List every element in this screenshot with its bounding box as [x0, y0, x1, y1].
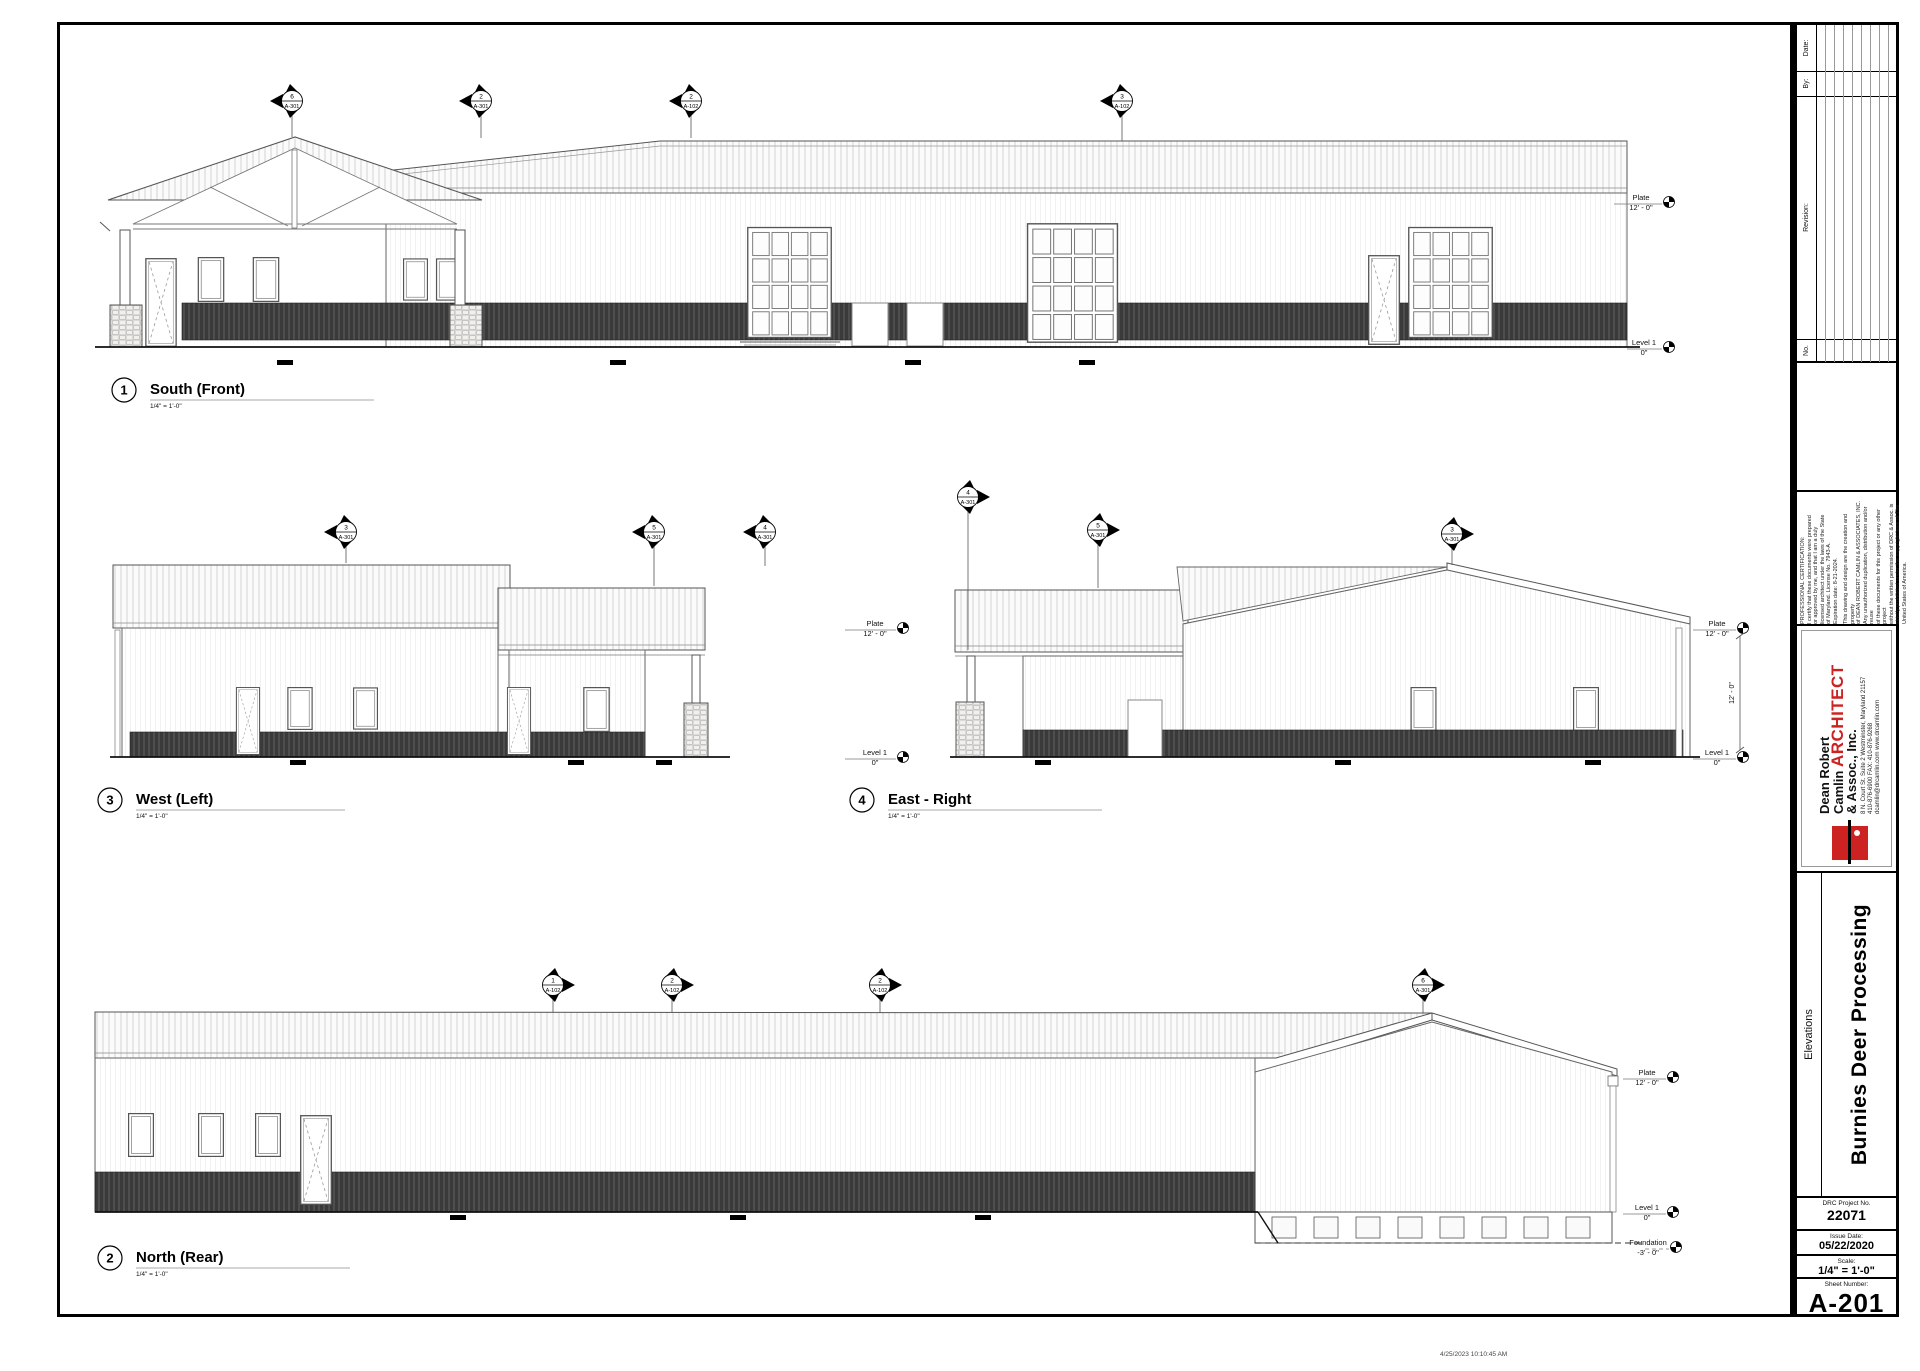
svg-text:4: 4 — [966, 490, 970, 497]
north-view-title: 2 North (Rear) 1/4" = 1'-0" — [98, 1246, 350, 1278]
scale-box: Scale: 1/4" = 1'-0" — [1797, 1254, 1896, 1277]
drawing-sheet: Plate 12' - 0" Level 1 0" 6A-301 2A-301 … — [0, 0, 1920, 1371]
svg-text:6: 6 — [1421, 978, 1425, 985]
scale-label: Scale: — [1797, 1258, 1896, 1265]
svg-text:2: 2 — [689, 94, 693, 101]
issue-date-box: Issue Date: 05/22/2020 — [1797, 1229, 1896, 1254]
svg-text:1: 1 — [551, 978, 555, 985]
east-view-title: 4 East - Right 1/4" = 1'-0" — [850, 788, 1102, 820]
svg-text:A-102: A-102 — [546, 988, 561, 994]
south-elevation-view: Plate 12' - 0" Level 1 0" 6A-301 2A-301 … — [95, 84, 1675, 410]
north-plate-annotation: Plate 12' - 0" — [1623, 1068, 1679, 1087]
west-elevation-view: Plate 12' - 0" Level 1 0" 3A-301 5A-301 … — [98, 515, 909, 820]
section-marker: 2A-102 — [662, 968, 695, 1002]
svg-text:2: 2 — [479, 94, 483, 101]
svg-text:3: 3 — [106, 793, 113, 808]
svg-text:12' - 0": 12' - 0" — [1705, 629, 1729, 638]
sheet-number-value: A-201 — [1797, 1288, 1896, 1319]
svg-text:4: 4 — [763, 525, 767, 532]
section-marker: 2A-102 — [669, 84, 702, 118]
svg-text:A-301: A-301 — [758, 535, 773, 541]
svg-text:South (Front): South (Front) — [150, 381, 245, 398]
svg-text:3: 3 — [1120, 94, 1124, 101]
west-plate-annotation: Plate 12' - 0" — [845, 619, 909, 638]
east-elevation-view: Plate 12' - 0" 12' - 0" Level 1 0" 4A-30… — [850, 480, 1749, 820]
svg-text:A-301: A-301 — [647, 535, 662, 541]
svg-text:3: 3 — [344, 525, 348, 532]
svg-text:0": 0" — [1714, 758, 1721, 767]
revision-date-label: Date: — [1797, 25, 1816, 71]
north-elevation-view: Plate 12' - 0" Level 1 0" Foundation -3'… — [95, 968, 1682, 1278]
north-level1-annotation: Level 1 0" — [1623, 1203, 1679, 1222]
architect-logo-box: Dean Robert Camlin ARCHITECT & Assoc., I… — [1797, 626, 1896, 871]
svg-text:12' - 0": 12' - 0" — [1729, 682, 1736, 704]
svg-text:A-102: A-102 — [873, 988, 888, 994]
plot-timestamp: 4/25/2023 10:10:45 AM — [1440, 1351, 1507, 1358]
south-view-title: 1 South (Front) 1/4" = 1'-0" — [112, 378, 374, 410]
section-marker: 2A-102 — [870, 968, 903, 1002]
firm-phone: 410-876-6900 FAX: 410-876-9268 — [1868, 633, 1875, 814]
svg-text:0": 0" — [872, 758, 879, 767]
west-view-title: 3 West (Left) 1/4" = 1'-0" — [98, 788, 345, 820]
north-foundation-annotation: Foundation -3' - 0" — [1629, 1238, 1681, 1257]
scale-value: 1/4" = 1'-0" — [1797, 1265, 1896, 1277]
east-level1-annotation: Level 1 0" — [1693, 748, 1749, 767]
svg-text:2: 2 — [670, 978, 674, 985]
west-level1-annotation: Level 1 0" — [845, 748, 909, 767]
svg-text:0": 0" — [1644, 1213, 1651, 1222]
section-marker: 3A-301 — [324, 515, 357, 549]
svg-text:A-102: A-102 — [665, 988, 680, 994]
section-marker: 2A-301 — [459, 84, 492, 118]
svg-text:12' - 0": 12' - 0" — [1629, 203, 1653, 212]
certification-paragraph-2: This drawing and design are the creation… — [1843, 494, 1908, 624]
section-marker: 5A-301 — [1088, 513, 1121, 547]
revision-no-label: No. — [1797, 339, 1816, 362]
project-number-value: 22071 — [1797, 1207, 1896, 1223]
sheet-title-box: Elevations Burnies Deer Processing — [1797, 871, 1896, 1196]
svg-text:Level 1: Level 1 — [1705, 748, 1729, 757]
svg-text:3: 3 — [1450, 527, 1454, 534]
svg-text:Level 1: Level 1 — [1632, 338, 1656, 347]
project-number-box: DRC Project No. 22071 — [1797, 1196, 1896, 1229]
section-marker: 4A-301 — [958, 480, 991, 514]
svg-text:0": 0" — [1641, 348, 1648, 357]
section-marker: 1A-102 — [543, 968, 576, 1002]
svg-text:A-301: A-301 — [339, 535, 354, 541]
svg-text:4: 4 — [858, 793, 866, 808]
svg-text:6: 6 — [290, 94, 294, 101]
svg-text:Level 1: Level 1 — [863, 748, 887, 757]
title-block: Date: By: Revision: No. PROFESSIONAL CER… — [1793, 22, 1899, 1317]
firm-web: dcamlin@drcamlin.com www.drcamlin.com — [1875, 633, 1882, 814]
sheet-number-label: Sheet Number: — [1797, 1281, 1896, 1288]
svg-text:5: 5 — [652, 525, 656, 532]
svg-text:North (Rear): North (Rear) — [136, 1249, 224, 1266]
svg-text:Foundation: Foundation — [1629, 1238, 1667, 1247]
svg-text:1/4" = 1'-0": 1/4" = 1'-0" — [150, 403, 182, 410]
svg-text:West (Left): West (Left) — [136, 791, 213, 808]
svg-text:A-301: A-301 — [1445, 537, 1460, 543]
revision-block: Date: By: Revision: No. — [1797, 25, 1896, 362]
svg-text:A-301: A-301 — [961, 500, 976, 506]
east-height-dimension: 12' - 0" — [1729, 633, 1744, 753]
svg-text:East - Right: East - Right — [888, 791, 971, 808]
svg-text:12' - 0": 12' - 0" — [1635, 1078, 1659, 1087]
svg-text:5: 5 — [1096, 523, 1100, 530]
svg-text:Level 1: Level 1 — [1635, 1203, 1659, 1212]
project-number-label: DRC Project No. — [1797, 1200, 1896, 1207]
empty-stamp-box — [1797, 362, 1896, 490]
section-marker: 6A-301 — [1413, 968, 1446, 1002]
svg-text:A-102: A-102 — [684, 104, 699, 110]
svg-text:Plate: Plate — [1708, 619, 1725, 628]
issue-date-label: Issue Date: — [1797, 1233, 1896, 1240]
svg-text:2: 2 — [106, 1251, 113, 1266]
east-plate-annotation: Plate 12' - 0" — [1693, 619, 1749, 638]
certification-paragraph-1: PROFESSIONAL CERTIFICATION: I certify th… — [1800, 515, 1839, 624]
revision-label: Revision: — [1797, 96, 1816, 339]
svg-text:-3' - 0": -3' - 0" — [1637, 1248, 1659, 1257]
section-marker: 3A-301 — [1442, 517, 1475, 551]
svg-text:1/4" = 1'-0": 1/4" = 1'-0" — [136, 813, 168, 820]
section-marker: 4A-301 — [743, 515, 776, 549]
svg-text:Plate: Plate — [1638, 1068, 1655, 1077]
section-marker: 5A-301 — [632, 515, 665, 549]
firm-address: 8 N. Court St. Suite 2 Westminster, Mary… — [1861, 633, 1868, 814]
certification-box: PROFESSIONAL CERTIFICATION: I certify th… — [1797, 490, 1896, 626]
firm-logo — [1830, 820, 1870, 864]
section-marker: 6A-301 — [270, 84, 303, 118]
revision-by-label: By: — [1797, 71, 1816, 96]
svg-text:Plate: Plate — [1632, 193, 1649, 202]
svg-text:A-301: A-301 — [474, 104, 489, 110]
svg-text:12' - 0": 12' - 0" — [863, 629, 887, 638]
svg-text:Plate: Plate — [866, 619, 883, 628]
sheet-title: Elevations — [1797, 873, 1821, 1196]
svg-text:A-102: A-102 — [1115, 104, 1130, 110]
elevation-drawings: Plate 12' - 0" Level 1 0" 6A-301 2A-301 … — [0, 0, 1920, 1371]
svg-text:1/4" = 1'-0": 1/4" = 1'-0" — [888, 813, 920, 820]
svg-text:2: 2 — [878, 978, 882, 985]
svg-text:A-301: A-301 — [285, 104, 300, 110]
issue-date-value: 05/22/2020 — [1797, 1240, 1896, 1252]
sheet-number-box: Sheet Number: A-201 — [1797, 1277, 1896, 1317]
svg-text:A-301: A-301 — [1416, 988, 1431, 994]
svg-text:1: 1 — [120, 383, 127, 398]
svg-text:1/4" = 1'-0": 1/4" = 1'-0" — [136, 1271, 168, 1278]
svg-text:A-301: A-301 — [1091, 533, 1106, 539]
section-marker: 3A-102 — [1100, 84, 1133, 118]
project-name: Burnies Deer Processing — [1821, 873, 1899, 1196]
